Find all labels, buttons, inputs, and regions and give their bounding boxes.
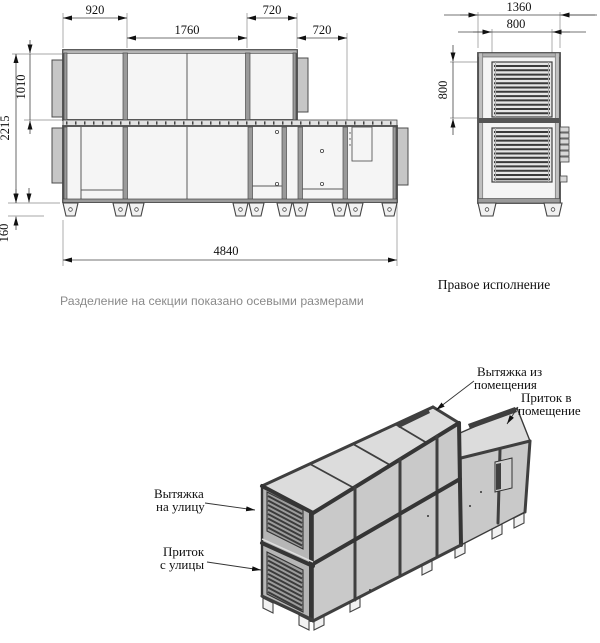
front-view-caption: Разделение на секции показано осевыми ра… — [60, 294, 364, 308]
front-upper-tier — [63, 50, 297, 120]
dim-4840-label: 4840 — [214, 244, 239, 258]
isometric-view: Вытяжка из помещения Приток в помещение … — [154, 364, 581, 630]
ahu-technical-drawing: 920 1760 720 720 1010 2215 160 4840 — [0, 0, 600, 643]
dim-800w-label: 800 — [507, 17, 526, 31]
front-lower-tier — [63, 126, 397, 203]
dim-920-label: 920 — [86, 3, 105, 17]
side-view-caption: Правое исполнение — [438, 277, 550, 292]
side-feet — [478, 203, 562, 216]
front-feet — [63, 203, 397, 216]
dim-720a-label: 720 — [263, 3, 282, 17]
side-lower-grille — [492, 128, 552, 182]
dim-2215-label: 2215 — [0, 116, 12, 141]
technical-drawing-page: 920 1760 720 720 1010 2215 160 4840 — [0, 0, 600, 643]
dim-1760-label: 1760 — [175, 23, 200, 37]
label-exhaust-to-outdoor-line2: на улицу — [156, 499, 205, 514]
label-supply-to-room-line2: помещение — [518, 403, 581, 418]
side-hinge-strip — [560, 127, 569, 182]
front-elevation-view: 920 1760 720 720 1010 2215 160 4840 — [0, 3, 408, 308]
dim-1360-label: 1360 — [507, 0, 532, 14]
dim-800h-label: 800 — [436, 81, 450, 100]
side-view: 1360 800 800 — [436, 0, 597, 292]
dim-160-label: 160 — [0, 224, 11, 243]
dim-720b-label: 720 — [313, 23, 332, 37]
label-supply-from-outdoor-line2: с улицы — [160, 557, 204, 572]
side-upper-grille — [492, 62, 552, 117]
